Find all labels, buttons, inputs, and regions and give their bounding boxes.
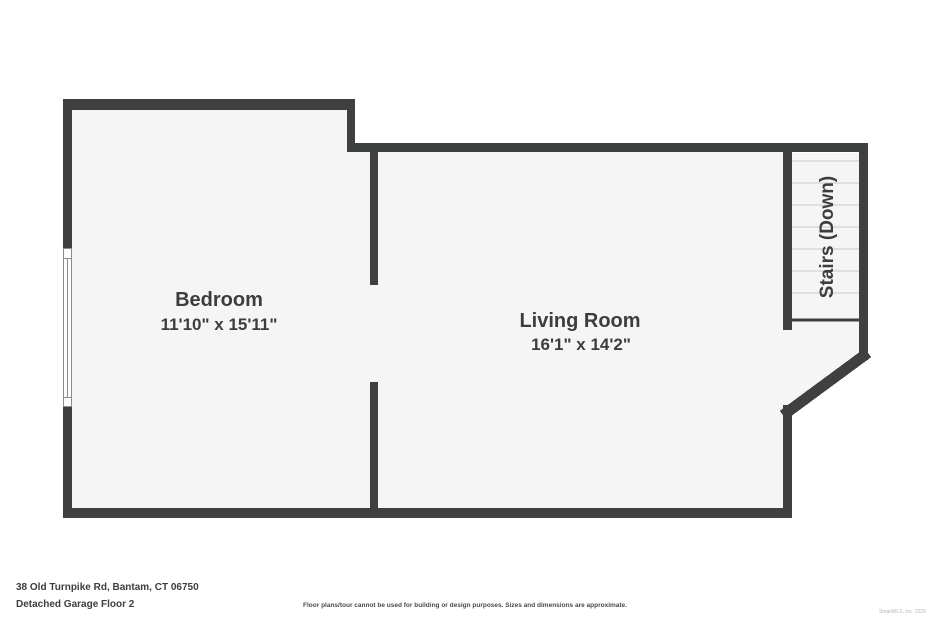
interior-wall-lower — [370, 382, 378, 508]
bedroom-label: Bedroom — [175, 289, 263, 311]
floor-plan: Bedroom 11'10" x 15'11" Living Room 16'1… — [0, 0, 930, 620]
interior-wall-upper — [370, 152, 378, 285]
bedroom-doorway-opening — [370, 285, 378, 382]
bedroom-top-wall — [63, 99, 355, 110]
bottom-wall — [63, 508, 792, 518]
living-room-label: Living Room — [519, 310, 640, 332]
stairs-left-wall — [783, 143, 792, 330]
watermark-text: SmartMLS, Inc. 2025 — [879, 609, 926, 615]
bedroom-floor-notch — [347, 152, 370, 508]
right-wall-lower — [783, 405, 792, 518]
living-room-dimensions: 16'1" x 14'2" — [531, 335, 631, 354]
stairs-doorway-opening — [783, 328, 792, 405]
property-address: 38 Old Turnpike Rd, Bantam, CT 06750 — [16, 582, 199, 593]
right-wall-outer — [859, 143, 868, 360]
stairs-label: Stairs (Down) — [817, 176, 838, 298]
left-wall-upper — [63, 99, 72, 248]
window — [64, 249, 72, 407]
left-wall-lower — [63, 407, 72, 518]
disclaimer-text: Floor plans/tour cannot be used for buil… — [0, 602, 930, 609]
bedroom-dimensions: 11'10" x 15'11" — [161, 315, 278, 334]
